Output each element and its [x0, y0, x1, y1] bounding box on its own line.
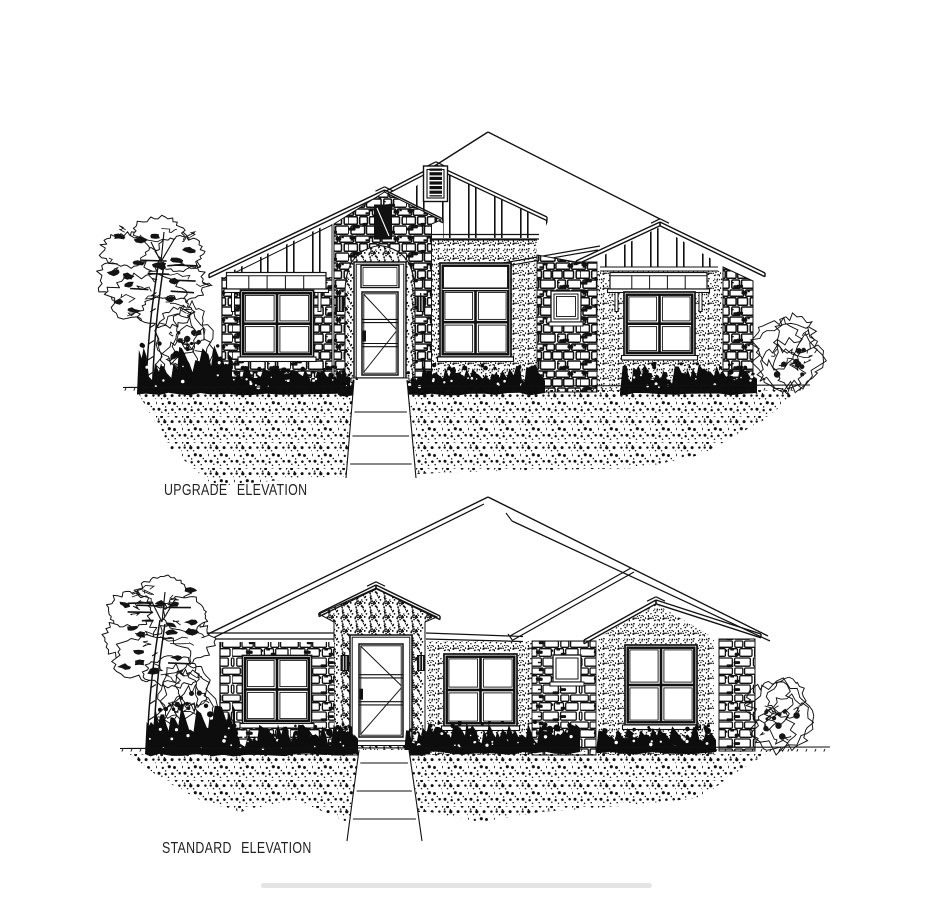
svg-text:STANDARD ELEVATION: STANDARD ELEVATION — [162, 839, 312, 857]
svg-text:UPGRADE ELEVATION: UPGRADE ELEVATION — [164, 481, 307, 499]
